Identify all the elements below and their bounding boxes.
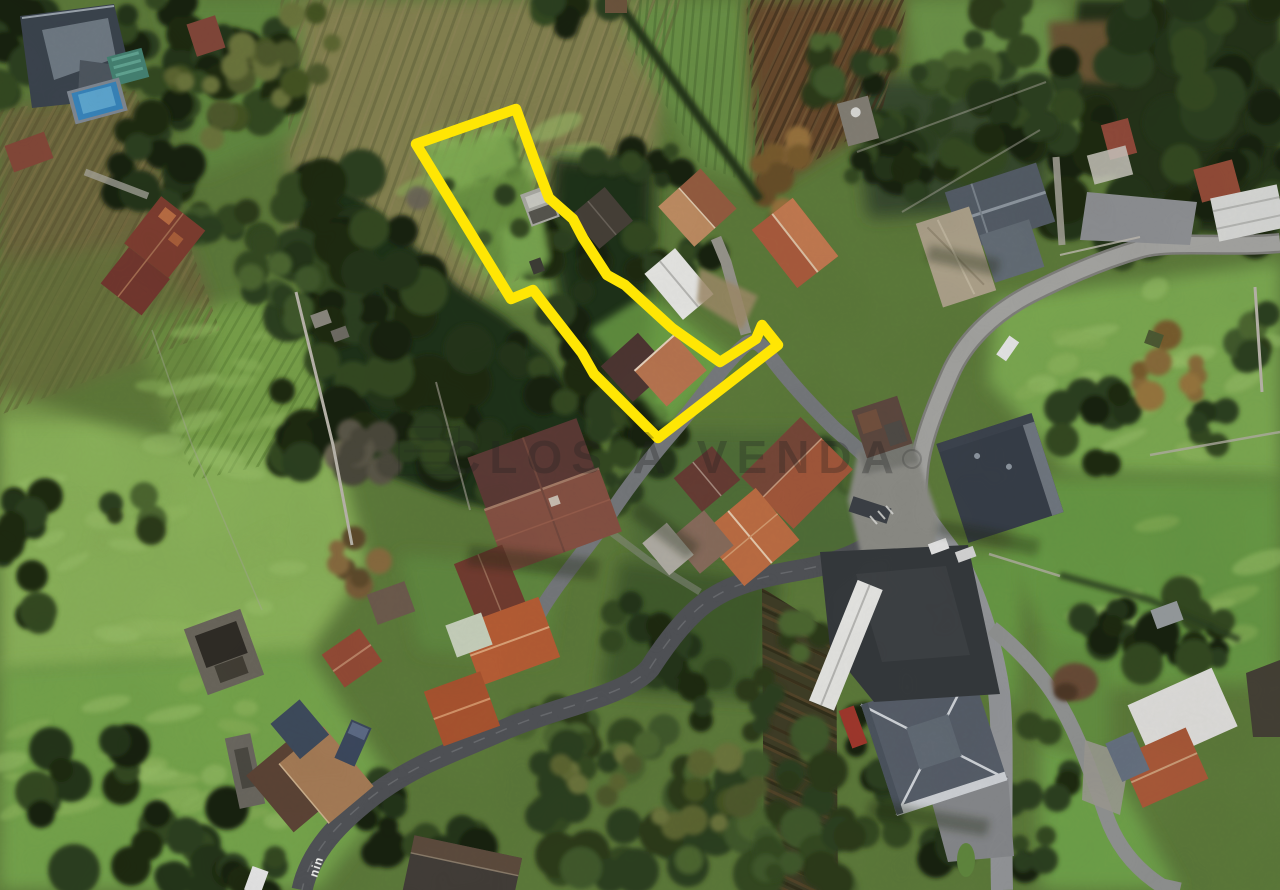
- svg-text:CLOS À VENDA: CLOS À VENDA: [447, 431, 903, 483]
